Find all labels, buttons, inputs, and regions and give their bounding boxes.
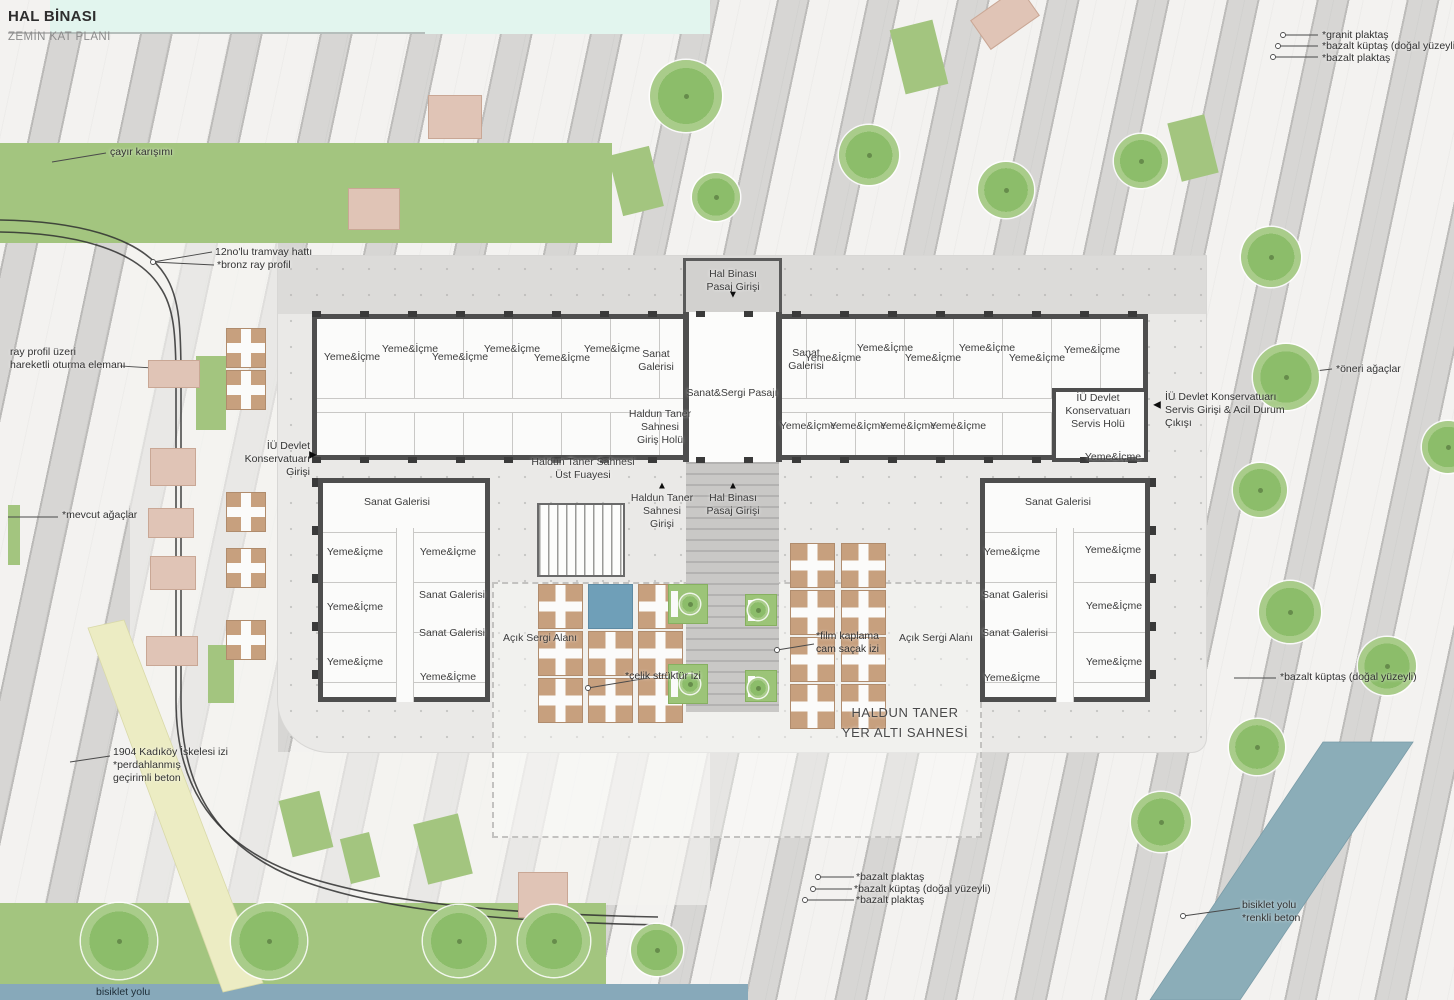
room-label-line: Giriş Holü — [629, 434, 691, 447]
room-label-line: Sanat Galerisi — [419, 627, 485, 640]
annotation-label: *öneri ağaçlar — [1336, 363, 1401, 376]
room-label-line: Hal Binası — [706, 268, 759, 281]
annotation-label-line: geçirimli beton — [113, 772, 228, 785]
tree-icon — [748, 678, 768, 698]
movable-seat — [348, 188, 400, 230]
annotation-label: çayır karışımı — [110, 146, 173, 159]
entrance-arrow-icon: ▶ — [309, 450, 317, 461]
tree-icon — [680, 594, 700, 614]
entrance-arrow-icon: ▼ — [728, 290, 738, 301]
room-label: Yeme&İçme — [1086, 600, 1142, 613]
room-label-line: Sanat&Sergi Pasajı — [686, 387, 777, 400]
room-label: Haldun TanerSahnesiGirişi — [631, 492, 693, 531]
room-label-line: Yeme&İçme — [830, 420, 886, 433]
annotation-label-line: bisiklet yolu — [96, 986, 150, 999]
tree-icon — [1358, 637, 1416, 695]
annotation-label-line: *renkli beton — [1242, 912, 1300, 925]
room-label-line: Konservatuarı — [1065, 405, 1130, 418]
room-label: Sanat&Sergi Pasajı — [686, 387, 777, 400]
tree-icon — [839, 125, 899, 185]
tree-icon — [1259, 581, 1321, 643]
room-label: Yeme&İçme — [420, 546, 476, 559]
tree-icon — [748, 600, 768, 620]
tree-icon — [1241, 227, 1301, 287]
tree-icon — [692, 173, 740, 221]
annotation-label: 1904 Kadıköy İskelesi izi*perdahlanmışge… — [113, 746, 228, 785]
annotation-label-line: *bazalt plaktaş — [856, 894, 924, 907]
room-label: Yeme&İçme — [382, 343, 438, 356]
room-label-line: Girişi — [631, 518, 693, 531]
room-label-line: Yeme&İçme — [984, 672, 1040, 685]
movable-seat — [148, 360, 200, 388]
room-label: Yeme&İçme — [327, 546, 383, 559]
annotation-label-line: *bronz ray profil — [217, 259, 291, 272]
room-label-line: Yeme&İçme — [420, 671, 476, 684]
room-label-line: Sanat Galerisi — [982, 627, 1048, 640]
room-label-line: Sanat Galerisi — [419, 589, 485, 602]
annotation-label-line: ray profil üzeri — [10, 346, 126, 359]
room-label: Yeme&İçme — [1085, 451, 1141, 464]
room-label-line: Yeme&İçme — [1085, 451, 1141, 464]
tree-icon — [978, 162, 1034, 218]
room-label: Yeme&İçme — [984, 672, 1040, 685]
annotation-label-line: *perdahlanmış — [113, 759, 228, 772]
annotation-label-line: Servis Girişi & Acil Durum — [1165, 404, 1285, 417]
site-plan-canvas: HAL BİNASI ZEMİN KAT PLANI Yeme&İçmeYeme… — [0, 0, 1454, 1000]
room-label: Sanat Galerisi — [982, 627, 1048, 640]
tree-icon — [1131, 792, 1191, 852]
room-label: Yeme&İçme — [327, 656, 383, 669]
room-label: Yeme&İçme — [1086, 656, 1142, 669]
room-label-line: Sanat Galerisi — [364, 496, 430, 509]
room-label-line: YER ALTI SAHNESİ — [842, 723, 968, 743]
annotation-label: bisiklet yolu — [96, 986, 150, 999]
room-label: Yeme&İçme — [930, 420, 986, 433]
room-label-line: Servis Holü — [1065, 418, 1130, 431]
entrance-arrow-icon: ◀ — [1153, 400, 1161, 411]
room-label-line: Hal Binası — [706, 492, 759, 505]
room-label-line: Yeme&İçme — [1086, 656, 1142, 669]
room-label-line: Açık Sergi Alanı — [899, 632, 973, 645]
room-label-line: Yeme&İçme — [324, 351, 380, 364]
annotation-label: *bronz ray profil — [217, 259, 291, 272]
room-label: Yeme&İçme — [484, 343, 540, 356]
room-label-line: HALDUN TANER — [842, 703, 968, 723]
room-label-line: Haldun Taner Sahnesi — [531, 456, 634, 469]
annotation-label-line: cam saçak izi — [816, 643, 879, 656]
room-label: Açık Sergi Alanı — [899, 632, 973, 645]
annotation-label: bisiklet yolu*renkli beton — [1242, 899, 1300, 925]
annotation-label: 12no'lu tramvay hattı — [215, 246, 312, 259]
entrance-arrow-icon: ▲ — [728, 481, 738, 492]
room-label: Sanat Galerisi — [982, 589, 1048, 602]
tree-icon — [231, 903, 307, 979]
room-label: Sanat Galerisi — [364, 496, 430, 509]
room-label: Yeme&İçme — [780, 420, 836, 433]
room-label: Yeme&İçme — [830, 420, 886, 433]
room-label-line: Pasaj Girişi — [706, 505, 759, 518]
annotation-label-line: hareketli oturma elemanı — [10, 359, 126, 372]
annotation-label-line: 1904 Kadıköy İskelesi izi — [113, 746, 228, 759]
room-label: Sanat Galerisi — [419, 627, 485, 640]
room-label-line: Galerisi — [638, 361, 674, 374]
room-label: Yeme&İçme — [1009, 352, 1065, 365]
tree-icon — [650, 60, 722, 132]
annotation-label-line: *mevcut ağaçlar — [62, 509, 137, 522]
annotation-label-line: *çelik strüktür izi — [625, 670, 701, 683]
movable-seat — [150, 556, 196, 590]
room-label: Sanat Galerisi — [1025, 496, 1091, 509]
room-label: Yeme&İçme — [324, 351, 380, 364]
room-label: Yeme&İçme — [420, 671, 476, 684]
tree-icon — [81, 903, 157, 979]
room-label-line: Haldun Taner — [629, 408, 691, 421]
annotation-label-line: İÜ Devlet Konservatuarı — [1165, 391, 1285, 404]
room-label-line: Üst Fuayesi — [531, 469, 634, 482]
annotation-label: *mevcut ağaçlar — [62, 509, 137, 522]
annotation-label-line: *öneri ağaçlar — [1336, 363, 1401, 376]
room-label-line: Sahnesi — [629, 421, 691, 434]
annotation-label: *film kaplamacam saçak izi — [816, 630, 879, 656]
room-label-line: Yeme&İçme — [984, 546, 1040, 559]
annotation-label-line: bisiklet yolu — [1242, 899, 1300, 912]
room-label-line: Yeme&İçme — [484, 343, 540, 356]
room-label-line: Yeme&İçme — [1086, 600, 1142, 613]
room-label-line: Yeme&İçme — [327, 546, 383, 559]
annotation-label-line: *bazalt küptaş (doğal yüzeyli) — [1280, 671, 1417, 684]
room-label-line: Yeme&İçme — [880, 420, 936, 433]
annotation-label: İÜ DevletKonservatuarıGirişi — [245, 440, 310, 479]
room-label-line: Yeme&İçme — [382, 343, 438, 356]
room-label: Açık Sergi Alanı — [503, 632, 577, 645]
annotation-label: *bazalt küptaş (doğal yüzeyli) — [1280, 671, 1417, 684]
movable-seat — [150, 448, 196, 486]
room-label: Yeme&İçme — [432, 351, 488, 364]
page-title: HAL BİNASI — [8, 8, 111, 25]
room-label-line: Yeme&İçme — [1064, 344, 1120, 357]
room-label: Yeme&İçme — [880, 420, 936, 433]
room-label-line: Sanat — [638, 348, 674, 361]
room-label-line: Yeme&İçme — [534, 352, 590, 365]
annotation-label-line: Çıkışı — [1165, 417, 1285, 430]
movable-seat — [148, 508, 194, 538]
annotation-label: ray profil üzerihareketli oturma elemanı — [10, 346, 126, 372]
annotation-label-line: *film kaplama — [816, 630, 879, 643]
room-label-line: Yeme&İçme — [930, 420, 986, 433]
tree-icon — [1233, 463, 1287, 517]
annotation-label-line: çayır karışımı — [110, 146, 173, 159]
tree-icon — [518, 905, 590, 977]
tree-icon — [423, 905, 495, 977]
annotation-label-line: 12no'lu tramvay hattı — [215, 246, 312, 259]
room-label-line: Yeme&İçme — [1085, 544, 1141, 557]
room-label-line: Sahnesi — [631, 505, 693, 518]
room-label-line: Yeme&İçme — [905, 352, 961, 365]
room-label: Yeme&İçme — [805, 352, 861, 365]
annotation-label-line: *bazalt plaktaş — [1322, 52, 1390, 65]
annotation-label-line: Konservatuarı — [245, 453, 310, 466]
room-label-line: Yeme&İçme — [780, 420, 836, 433]
room-label: Yeme&İçme — [327, 601, 383, 614]
room-label: Yeme&İçme — [584, 343, 640, 356]
room-label-line: Yeme&İçme — [805, 352, 861, 365]
room-label: Hal BinasıPasaj Girişi — [706, 492, 759, 518]
room-label-line: Haldun Taner — [631, 492, 693, 505]
room-label: Yeme&İçme — [1064, 344, 1120, 357]
room-label: HALDUN TANERYER ALTI SAHNESİ — [842, 703, 968, 742]
room-label: Yeme&İçme — [959, 342, 1015, 355]
annotation-label: İÜ Devlet KonservatuarıServis Girişi & A… — [1165, 391, 1285, 430]
room-label: Yeme&İçme — [534, 352, 590, 365]
room-label-line: Sanat Galerisi — [1025, 496, 1091, 509]
room-label: İÜ DevletKonservatuarıServis Holü — [1065, 392, 1130, 431]
entrance-arrow-icon: ▲ — [657, 481, 667, 492]
movable-seat — [428, 95, 482, 139]
room-label-line: İÜ Devlet — [1065, 392, 1130, 405]
room-label: Yeme&İçme — [905, 352, 961, 365]
tree-icon — [1114, 134, 1168, 188]
annotation-label: *bazalt plaktaş — [1322, 52, 1390, 65]
room-label: Sanat Galerisi — [419, 589, 485, 602]
room-label-line: Yeme&İçme — [584, 343, 640, 356]
room-label-line: Yeme&İçme — [327, 601, 383, 614]
room-label: Yeme&İçme — [984, 546, 1040, 559]
title-block: HAL BİNASI ZEMİN KAT PLANI — [8, 8, 111, 43]
tree-icon — [1229, 719, 1285, 775]
room-label-line: Yeme&İçme — [327, 656, 383, 669]
room-label: Haldun Taner SahnesiÜst Fuayesi — [531, 456, 634, 482]
annotation-label: *çelik strüktür izi — [625, 670, 701, 683]
room-label-line: Açık Sergi Alanı — [503, 632, 577, 645]
annotation-label: *bazalt plaktaş — [856, 894, 924, 907]
annotation-label-line: Girişi — [245, 466, 310, 479]
room-label-line: Yeme&İçme — [420, 546, 476, 559]
room-label-line: Yeme&İçme — [432, 351, 488, 364]
annotation-label-line: İÜ Devlet — [245, 440, 310, 453]
page-subtitle: ZEMİN KAT PLANI — [8, 31, 111, 43]
room-label: SanatGalerisi — [638, 348, 674, 374]
room-label: Haldun TanerSahnesiGiriş Holü — [629, 408, 691, 447]
room-label: Yeme&İçme — [1085, 544, 1141, 557]
tree-icon — [631, 924, 683, 976]
room-label-line: Yeme&İçme — [959, 342, 1015, 355]
room-label-line: Sanat Galerisi — [982, 589, 1048, 602]
room-label-line: Yeme&İçme — [1009, 352, 1065, 365]
movable-seat — [146, 636, 198, 666]
